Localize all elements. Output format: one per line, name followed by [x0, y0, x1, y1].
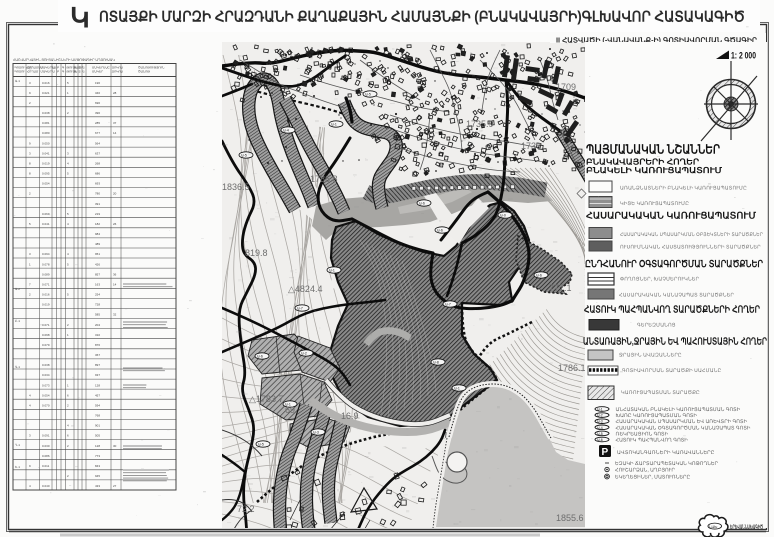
svg-text:0.071: 0.071 — [42, 283, 50, 287]
svg-text:72.2: 72.2 — [237, 504, 255, 514]
svg-text:Տ: Տ — [79, 70, 81, 74]
svg-text:ՀԱՍԱՐԱԿԱԿԱՆ ՍՊԱՍԱՐԿՄԱՆ ԵՎ ԱՌԵՎ: ՀԱՍԱՐԱԿԱԿԱՆ ՍՊԱՍԱՐԿՄԱՆ ԵՎ ԱՌԵՎՏՐԻ ԳՈՏԻ — [616, 419, 748, 425]
svg-text:ԿԱՌՈՒՑԱՊԱՏՄԱՆ ՏԱՐԱԾՔԸ: ԿԱՌՈՒՑԱՊԱՏՄԱՆ ՏԱՐԱԾՔԸ — [621, 390, 700, 396]
svg-text:Ե-1: Ե-1 — [15, 465, 20, 469]
svg-text:14: 14 — [113, 131, 117, 135]
svg-text:ՓՈՂՈՑՆԵՐ, ԽԱՉՄԵՐՈՒԿՆԵՐ: ՓՈՂՈՑՆԵՐ, ԽԱՉՄԵՐՈՒԿՆԵՐ — [620, 277, 700, 283]
svg-text:Ա-5: Ա-5 — [241, 154, 247, 158]
svg-text:637: 637 — [95, 151, 100, 155]
svg-text:Ա-7: Ա-7 — [445, 303, 451, 307]
svg-text:204: 204 — [95, 323, 100, 327]
svg-text:768: 768 — [95, 414, 100, 418]
svg-text:0.041: 0.041 — [42, 151, 50, 155]
svg-text:ՏՈԿՈՍ: ՏՈԿՈՍ — [112, 70, 123, 74]
svg-text:457: 457 — [95, 393, 100, 397]
svg-text:20: 20 — [113, 192, 117, 196]
svg-text:182: 182 — [95, 222, 100, 226]
svg-text:0.030: 0.030 — [42, 444, 50, 448]
svg-text:693: 693 — [95, 182, 100, 186]
svg-text:Ա-1: Ա-1 — [331, 123, 337, 127]
svg-text:1855.6: 1855.6 — [556, 513, 584, 523]
svg-text:Ա-4: Ա-4 — [283, 129, 289, 133]
svg-text:876: 876 — [95, 343, 100, 347]
svg-text:ԾԱՆՈԹ: ԾԱՆՈԹ — [138, 70, 150, 74]
svg-text:ՀԱՍԱՐԱԿԱԿԱՆ ԿԱՆԱՉԱՊԱՏ ՏԱՐԱԾՔՆԵ: ՀԱՍԱՐԱԿԱԿԱՆ ԿԱՆԱՉԱՊԱՏ ՏԱՐԱԾՔՆԵՐ — [619, 293, 734, 299]
svg-text:780: 780 — [95, 192, 100, 196]
svg-text:ՈՒՍՈՒՄՆԱԿԱՆ ՀԱՍՏԱՏՈՒԹՅՈՒՆՆԵՐԻ: ՈՒՍՈՒՄՆԱԿԱՆ ՀԱՍՏԱՏՈՒԹՅՈՒՆՆԵՐԻ ՏԱՐԱԾՔՆԵՐ — [620, 245, 761, 251]
svg-text:0.080: 0.080 — [42, 131, 50, 135]
svg-text:391: 391 — [95, 202, 100, 206]
svg-text:Ա-0: Ա-0 — [500, 214, 506, 218]
svg-text:△4824.4: △4824.4 — [288, 284, 322, 294]
svg-text:ԳԵՐԵԶՄԱՆՈՑ: ԳԵՐԵԶՄԱՆՈՑ — [637, 323, 676, 329]
svg-text:Ա-5: Ա-5 — [365, 93, 371, 97]
svg-text:ԸՆԴՀԱՆՈՒՐ ՕԳՏԱԳՈՐԾՄԱՆ ՏԱՐԱԾՔՆԵ: ԸՆԴՀԱՆՈՒՐ ՕԳՏԱԳՈՐԾՄԱՆ ՏԱՐԱԾՔՆԵՐ — [585, 259, 763, 270]
svg-text:ՌԵԿՐԵԱՑԻՈՆ ԳՈՏԻ: ՌԵԿՐԵԱՑԻՈՆ ԳՈՏԻ — [616, 431, 669, 437]
svg-text:0.081: 0.081 — [42, 121, 50, 125]
svg-text:Ա-4: Ա-4 — [597, 426, 603, 430]
svg-text:773: 773 — [95, 454, 100, 458]
svg-text:ՀԱՍԱՐԱԿԱԿԱՆ ՍՊԱՍԱՐԿՄԱՆ ՕԲՅԵԿՏՆ: ՀԱՍԱՐԱԿԱԿԱՆ ՍՊԱՍԱՐԿՄԱՆ ՕԲՅԵԿՏՆԵՐԻ ՏԱՐԱԾՔ… — [620, 232, 763, 238]
svg-text:1735.9: 1735.9 — [466, 119, 494, 129]
svg-text:594: 594 — [95, 404, 100, 408]
svg-text:Ե: Ե — [83, 70, 85, 74]
svg-text:Խ: Խ — [75, 70, 78, 74]
svg-text:Ա-2: Ա-2 — [15, 287, 20, 291]
svg-text:P: P — [602, 447, 609, 458]
svg-text:777.1: 777.1 — [549, 283, 572, 293]
svg-text:585: 585 — [95, 313, 100, 317]
svg-text:0.070: 0.070 — [42, 404, 50, 408]
svg-text:ՈՏԱՅՔԻ ՄԱՐԶԻ ՀՐԱԶԴԱՆԻ ՔԱՂԱՔԱՅԻ: ՈՏԱՅՔԻ ՄԱՐԶԻ ՀՐԱԶԴԱՆԻ ՔԱՂԱՔԱՅԻՆ ՀԱՄԱՅՆՔԻ… — [99, 10, 745, 26]
svg-text:Ա-2: Ա-2 — [301, 352, 307, 356]
svg-text:937: 937 — [95, 373, 100, 377]
svg-text:219: 219 — [95, 212, 100, 216]
svg-text:0.050: 0.050 — [42, 141, 50, 145]
svg-text:128: 128 — [95, 444, 100, 448]
svg-text:433: 433 — [95, 484, 100, 488]
svg-text:945: 945 — [95, 474, 100, 478]
svg-text:505: 505 — [95, 434, 100, 438]
svg-text:69: 69 — [285, 405, 295, 415]
svg-text:254: 254 — [95, 293, 100, 297]
svg-text:0.011: 0.011 — [42, 464, 50, 468]
svg-text:ԳՈՏԻԱՎՈՐՄԱՆ ՏԱՐԱԾՔԻ ՍԱՀՄԱՆԸ: ԳՈՏԻԱՎՈՐՄԱՆ ՏԱՐԱԾՔԻ ՍԱՀՄԱՆԸ — [622, 368, 722, 374]
svg-text:489: 489 — [95, 242, 100, 246]
svg-text:984: 984 — [95, 232, 100, 236]
svg-text:28: 28 — [113, 91, 117, 95]
svg-text:Ա-1: Ա-1 — [15, 79, 20, 83]
svg-text:951: 951 — [95, 252, 100, 256]
svg-text:0.019: 0.019 — [42, 161, 50, 165]
svg-text:26: 26 — [113, 222, 117, 226]
svg-text:857: 857 — [95, 272, 100, 276]
svg-text:0.054: 0.054 — [42, 182, 50, 186]
svg-text:ԵՐԵՎԱՆՆԱԽԱԳԻԾ: ԵՐԵՎԱՆՆԱԽԱԳԻԾ — [730, 524, 763, 531]
svg-text:37: 37 — [113, 121, 117, 125]
svg-text:ՀԱՏՈՒԿ ՊԱՀՊԱՆՎՈՂ ԳՈՏԻ: ՀԱՏՈՒԿ ՊԱՀՊԱՆՎՈՂ ԳՈՏԻ — [616, 438, 689, 444]
svg-text:Բ: Բ — [57, 70, 59, 74]
svg-text:Ա-6: Ա-6 — [419, 202, 425, 206]
svg-text:ՄԱԿԵՐ: ՄԱԿԵՐ — [92, 70, 103, 74]
svg-text:Ա-7: Ա-7 — [297, 307, 303, 311]
svg-text:843: 843 — [95, 464, 100, 468]
svg-text:686: 686 — [95, 172, 100, 176]
svg-text:0.094: 0.094 — [42, 252, 50, 256]
svg-text:0.086: 0.086 — [42, 454, 50, 458]
svg-text:901: 901 — [95, 424, 100, 428]
svg-text:0.040: 0.040 — [42, 484, 50, 488]
svg-text:426: 426 — [95, 262, 100, 266]
svg-text:ԵԿԵՂԵՑԻՆԵՐ, ՄԱՏՈՒՌՆԵՐԸ: ԵԿԵՂԵՑԻՆԵՐ, ՄԱՏՈՒՌՆԵՐԸ — [615, 475, 691, 481]
svg-text:1836.5: 1836.5 — [222, 182, 250, 192]
svg-text:ՊԱՅՄԱՆԱԿԱՆ ՆՇԱՆՆԵՐ: ՊԱՅՄԱՆԱԿԱՆ ՆՇԱՆՆԵՐ — [586, 143, 720, 157]
svg-text:0.019: 0.019 — [42, 303, 50, 307]
svg-text:Ա-5: Ա-5 — [597, 432, 603, 436]
svg-text:0.069: 0.069 — [42, 212, 50, 216]
svg-text:ՀԱՇՎԱՐԿԱՅԻՆ ՑՈՒՑԱՆԻՇՆԵՐԻ ԱՄՓՈՓ: ՀԱՇՎԱՐԿԱՅԻՆ ՑՈՒՑԱՆԻՇՆԵՐԻ ԱՄՓՈՓԱԳԻՐ ԱՂՅՈՒ… — [13, 58, 115, 62]
svg-text:Կ: Կ — [70, 3, 90, 33]
svg-text:163: 163 — [95, 283, 100, 287]
svg-text:ՄԱԿԵՐ: ՄԱԿԵՐ — [41, 70, 52, 74]
svg-text:△1783.7: △1783.7 — [249, 394, 283, 404]
svg-text:0.098: 0.098 — [42, 333, 50, 337]
svg-text:32: 32 — [113, 313, 117, 317]
svg-text:0.034: 0.034 — [42, 373, 50, 377]
svg-text:36: 36 — [113, 272, 117, 276]
svg-text:0.016: 0.016 — [42, 81, 50, 85]
svg-text:564: 564 — [95, 141, 100, 145]
svg-text:ՋՐԱՅԻՆ ԱՎԱԶԱՆՆԵՐԸ: ՋՐԱՅԻՆ ԱՎԱԶԱՆՆԵՐԸ — [619, 353, 682, 359]
svg-text:268: 268 — [95, 161, 100, 165]
svg-text:16.9: 16.9 — [341, 411, 359, 421]
svg-text:0.095: 0.095 — [42, 172, 50, 176]
svg-text:0.016: 0.016 — [42, 293, 50, 297]
svg-text:196: 196 — [95, 81, 100, 85]
svg-text:1709: 1709 — [556, 82, 576, 92]
svg-text:0.091: 0.091 — [42, 434, 50, 438]
svg-text:ԲՆԱԿԵԼԻ ԿԱՌՈՒՑԱՊԱՏՈՒՄ: ԲՆԱԿԵԼԻ ԿԱՌՈՒՑԱՊԱՏՈՒՄ — [586, 166, 723, 175]
svg-text:Ա-8: Ա-8 — [433, 361, 439, 365]
svg-text:Ա-1: Ա-1 — [329, 269, 335, 273]
svg-text:1786.1: 1786.1 — [558, 363, 586, 373]
svg-text:Ա-3: Ա-3 — [597, 420, 603, 424]
svg-text:0.073: 0.073 — [42, 383, 50, 387]
svg-text:ՀԱՏՈՒԿ ՊԱՀՊԱՆՎՈՂ ՏԱՐԱԾՔՆԵՐԻ ՀՈ: ՀԱՏՈՒԿ ՊԱՀՊԱՆՎՈՂ ՏԱՐԱԾՔՆԵՐԻ ՀՈՂԵՐ — [584, 305, 760, 316]
svg-text:27: 27 — [113, 484, 117, 488]
svg-text:Ա-6: Ա-6 — [536, 274, 542, 278]
svg-text:Բ-1: Բ-1 — [15, 319, 20, 323]
svg-text:Ա-6: Ա-6 — [257, 355, 263, 359]
svg-text:Ա-3: Ա-3 — [313, 431, 319, 435]
svg-text:Ա-1: Ա-1 — [454, 387, 460, 391]
svg-text:128: 128 — [95, 383, 100, 387]
svg-text:0.038: 0.038 — [42, 363, 50, 367]
svg-text:Ա-6: Ա-6 — [597, 438, 603, 442]
svg-text:30: 30 — [113, 444, 117, 448]
svg-text:Ա-6: Ա-6 — [437, 229, 443, 233]
svg-text:0.078: 0.078 — [42, 262, 50, 266]
svg-text:Ա-1: Ա-1 — [597, 408, 603, 412]
svg-text:ԱՆՏԱՌԱՅԻՆ,ՋՐԱՅԻՆ ԵՎ ՊԱՀՈՒՍՏԱՅԻ: ԱՆՏԱՌԱՅԻՆ,ՋՐԱՅԻՆ ԵՎ ՊԱՀՈՒՍՏԱՅԻՆ ՀՈՂԵՐ — [583, 337, 767, 348]
svg-text:0.038: 0.038 — [42, 111, 50, 115]
svg-text:1786.8: 1786.8 — [310, 174, 338, 184]
svg-text:ՀՈՒՇԱՐՁԱՆ, ԱՂԲՅՈՒՐ: ՀՈՒՇԱՐՁԱՆ, ԱՂԲՅՈՒՐ — [615, 468, 675, 474]
svg-text:367: 367 — [95, 353, 100, 357]
svg-text:310: 310 — [95, 333, 100, 337]
svg-text:Ա-2: Ա-2 — [597, 414, 603, 418]
svg-text:ՀԱՍԱՐԱԿԱԿԱՆ ԿԱՌՈՒՑԱՊԱՏՈՒՄ: ՀԱՍԱՐԱԿԱԿԱՆ ԿԱՌՈՒՑԱՊԱՏՈՒՄ — [586, 211, 757, 221]
svg-text:728: 728 — [95, 303, 100, 307]
svg-text:ԿԻՑԵ ԿԱՌՈՒՑԱՊԱՏՈՒՄԸ: ԿԻՑԵ ԿԱՌՈՒՑԱՊԱՏՈՒՄԸ — [620, 201, 689, 207]
svg-text:696: 696 — [95, 101, 100, 105]
svg-text:0.041: 0.041 — [42, 222, 50, 226]
svg-text:677: 677 — [95, 131, 100, 135]
svg-text:ԳՈՏՈՒ: ԳՈՏՈՒ — [15, 70, 26, 74]
svg-text:285: 285 — [95, 121, 100, 125]
svg-text:ՀԱՍԱՐԱԿԱԿԱՆ ՕԳՏԱԳՈՐԾՄԱՆ ԿԱՆԱՉԱ: ՀԱՍԱՐԱԿԱԿԱՆ ՕԳՏԱԳՈՐԾՄԱՆ ԿԱՆԱՉԱՊԱՏ ԳՈՏԻ — [616, 425, 751, 431]
svg-text:Գ-1: Գ-1 — [15, 365, 20, 369]
svg-text:Ա-5: Ա-5 — [258, 443, 264, 447]
svg-text:ԱՌԱՆՁՆԱՏՆԵՐԻ ԲՆԱԿԵԼԻ ԿԱՌՈՒՑԱՊԱ: ԱՌԱՆՁՆԱՏՆԵՐԻ ԲՆԱԿԵԼԻ ԿԱՌՈՒՑԱՊԱՏՈՒՄԸ — [620, 185, 747, 191]
svg-text:ԱՎՏՈԿԱՆԳԱՌՆԵՐԻ ԿԱՌԱՎԱՆՆԵՐԸ: ԱՎՏՈԿԱՆԳԱՌՆԵՐԻ ԿԱՌԱՎԱՆՆԵՐԸ — [617, 450, 715, 456]
svg-text:ՀՈՂԱՄ: ՀՈՂԱՄ — [27, 70, 39, 74]
svg-text:1736.: 1736. — [521, 141, 544, 151]
svg-text:1: 2 000: 1: 2 000 — [731, 51, 756, 62]
svg-text:396: 396 — [95, 111, 100, 115]
svg-text:ՆԱԽ: ՆԱԽ — [709, 525, 717, 529]
svg-text:14: 14 — [113, 283, 117, 287]
svg-text:0.054: 0.054 — [42, 393, 50, 397]
svg-text:0.089: 0.089 — [42, 272, 50, 276]
svg-text:897: 897 — [95, 363, 100, 367]
svg-text:Դ-1: Դ-1 — [15, 443, 20, 447]
svg-text:ԽԱՌԸ ԿԱՌՈՒՑԱՊԱՏՄԱՆ ԳՈՏԻ: ԽԱՌԸ ԿԱՌՈՒՑԱՊԱՏՄԱՆ ԳՈՏԻ — [616, 413, 698, 419]
svg-text:0.079: 0.079 — [42, 343, 50, 347]
svg-text:0.021: 0.021 — [42, 91, 50, 95]
svg-text:ԱՆՀԱՏԱԿԱՆ ԲՆԱԿԵԼԻ ԿԱՌՈՒՑԱՊԱՏՄԱ: ԱՆՀԱՏԱԿԱՆ ԲՆԱԿԵԼԻ ԿԱՌՈՒՑԱՊԱՏՄԱՆ ԳՈՏԻ — [616, 407, 741, 413]
svg-text:819.8: 819.8 — [245, 248, 268, 258]
svg-text:ԵԶԱԿԻ ՃԱՐՏԱՐԱՊԵՏԱԿԱՆ ԿՈԹՈՂՆԵՐ: ԵԶԱԿԻ ՃԱՐՏԱՐԱՊԵՏԱԿԱՆ ԿՈԹՈՂՆԵՐ — [615, 461, 719, 467]
svg-text:0.071: 0.071 — [42, 323, 50, 327]
svg-text:346: 346 — [95, 91, 100, 95]
